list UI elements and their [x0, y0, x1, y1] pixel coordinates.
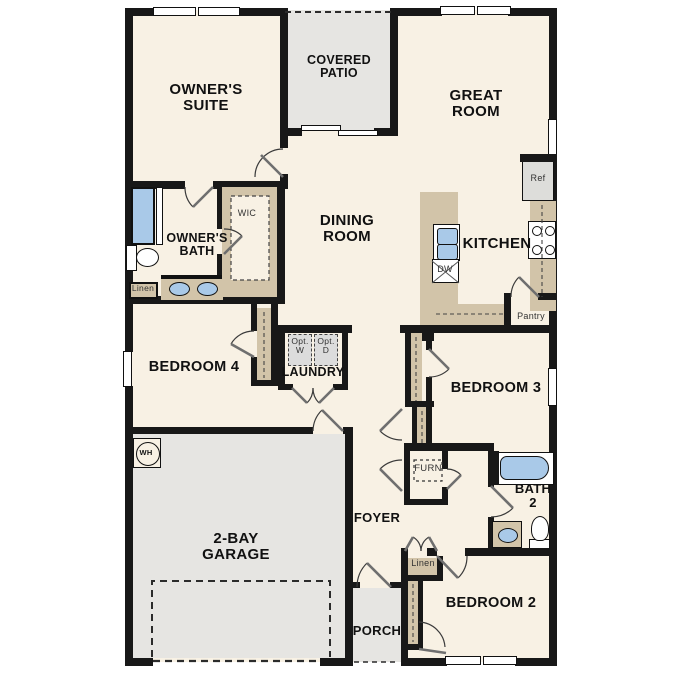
- window: [548, 119, 557, 155]
- closet: [411, 333, 422, 403]
- wic-label: WIC: [238, 209, 256, 219]
- wall: [442, 451, 448, 469]
- wall: [426, 333, 432, 350]
- laundry-label: LAUNDRY: [282, 366, 345, 379]
- wall: [520, 154, 557, 162]
- sink: [498, 528, 518, 543]
- toilet-bowl: [136, 248, 159, 267]
- wall: [400, 325, 557, 333]
- wall: [271, 304, 278, 386]
- wall: [404, 499, 448, 505]
- wall: [538, 293, 557, 300]
- wall: [125, 427, 313, 434]
- sink: [197, 282, 218, 296]
- window: [483, 656, 517, 665]
- bedroom2-label: BEDROOM 2: [446, 596, 537, 611]
- bedroom3-label: BEDROOM 3: [451, 381, 542, 396]
- burner: [545, 245, 555, 255]
- wall: [393, 8, 442, 16]
- covered-patio-label: COVERED PATIO: [307, 54, 371, 81]
- linen-hall-label: Linen: [411, 559, 435, 569]
- garage-label: 2-BAY GARAGE: [202, 531, 270, 563]
- wall: [125, 658, 153, 666]
- window: [477, 6, 511, 15]
- wall: [280, 136, 288, 148]
- wall: [278, 325, 352, 333]
- wall: [277, 181, 285, 304]
- foyer-label: FOYER: [354, 511, 400, 525]
- bedroom4-label: BEDROOM 4: [149, 360, 240, 375]
- wall: [404, 443, 493, 451]
- wall: [342, 325, 348, 390]
- wall: [404, 443, 410, 505]
- closet: [408, 581, 418, 644]
- wall: [488, 451, 499, 485]
- bath2-label: BATH 2: [515, 482, 551, 510]
- toilet-bowl: [531, 516, 549, 541]
- closet: [257, 308, 271, 380]
- bathtub: [500, 456, 549, 480]
- window: [445, 656, 481, 665]
- ref-label: Ref: [531, 174, 546, 184]
- great-room-label: GREAT ROOM: [450, 88, 503, 120]
- sink-basin: [437, 244, 458, 260]
- sliding-door[interactable]: [338, 130, 378, 136]
- wall: [465, 548, 557, 556]
- floor-plan: OWNER'S SUITECOVERED PATIOGREAT ROOMDINI…: [0, 0, 687, 687]
- burner: [532, 245, 542, 255]
- sink-basin: [437, 228, 458, 245]
- wall: [427, 548, 437, 556]
- wall: [401, 644, 423, 650]
- wall: [251, 380, 278, 386]
- porch-label: PORCH: [353, 624, 401, 638]
- wall: [278, 384, 293, 390]
- linen-bath-label: Linen: [132, 284, 154, 293]
- wall: [345, 582, 360, 588]
- owners-suite-label: OWNER'S SUITE: [169, 82, 242, 114]
- window: [123, 351, 132, 387]
- window: [440, 6, 475, 15]
- window: [198, 7, 240, 16]
- wall: [278, 325, 285, 390]
- burner: [545, 226, 555, 236]
- sliding-door[interactable]: [301, 125, 341, 131]
- wall: [549, 405, 557, 666]
- wall: [549, 8, 557, 120]
- shower-glass: [156, 187, 163, 245]
- wall: [437, 556, 443, 581]
- wall: [237, 8, 285, 16]
- furn-label: FURN: [414, 464, 442, 474]
- window: [153, 7, 196, 16]
- window: [548, 368, 557, 406]
- shower: [131, 187, 155, 245]
- pantry-label: Pantry: [517, 312, 545, 322]
- burner: [532, 226, 542, 236]
- wall: [426, 377, 432, 451]
- dining-room-label: DINING ROOM: [320, 213, 374, 245]
- opt-w-label: Opt. W: [291, 337, 308, 355]
- owners-bath-label: OWNER'S BATH: [166, 232, 227, 259]
- wall: [333, 384, 348, 390]
- wall: [280, 128, 302, 136]
- kitchen-counter: [420, 304, 506, 325]
- wall: [280, 8, 288, 136]
- wall: [418, 578, 423, 648]
- wh-label: WH: [139, 449, 152, 457]
- wall: [408, 658, 447, 666]
- opt-d-label: Opt. D: [317, 337, 334, 355]
- wall: [390, 8, 398, 136]
- kitchen-label: KITCHEN: [463, 236, 532, 252]
- sink: [169, 282, 190, 296]
- wall: [515, 658, 557, 666]
- dw-label: DW: [437, 265, 453, 275]
